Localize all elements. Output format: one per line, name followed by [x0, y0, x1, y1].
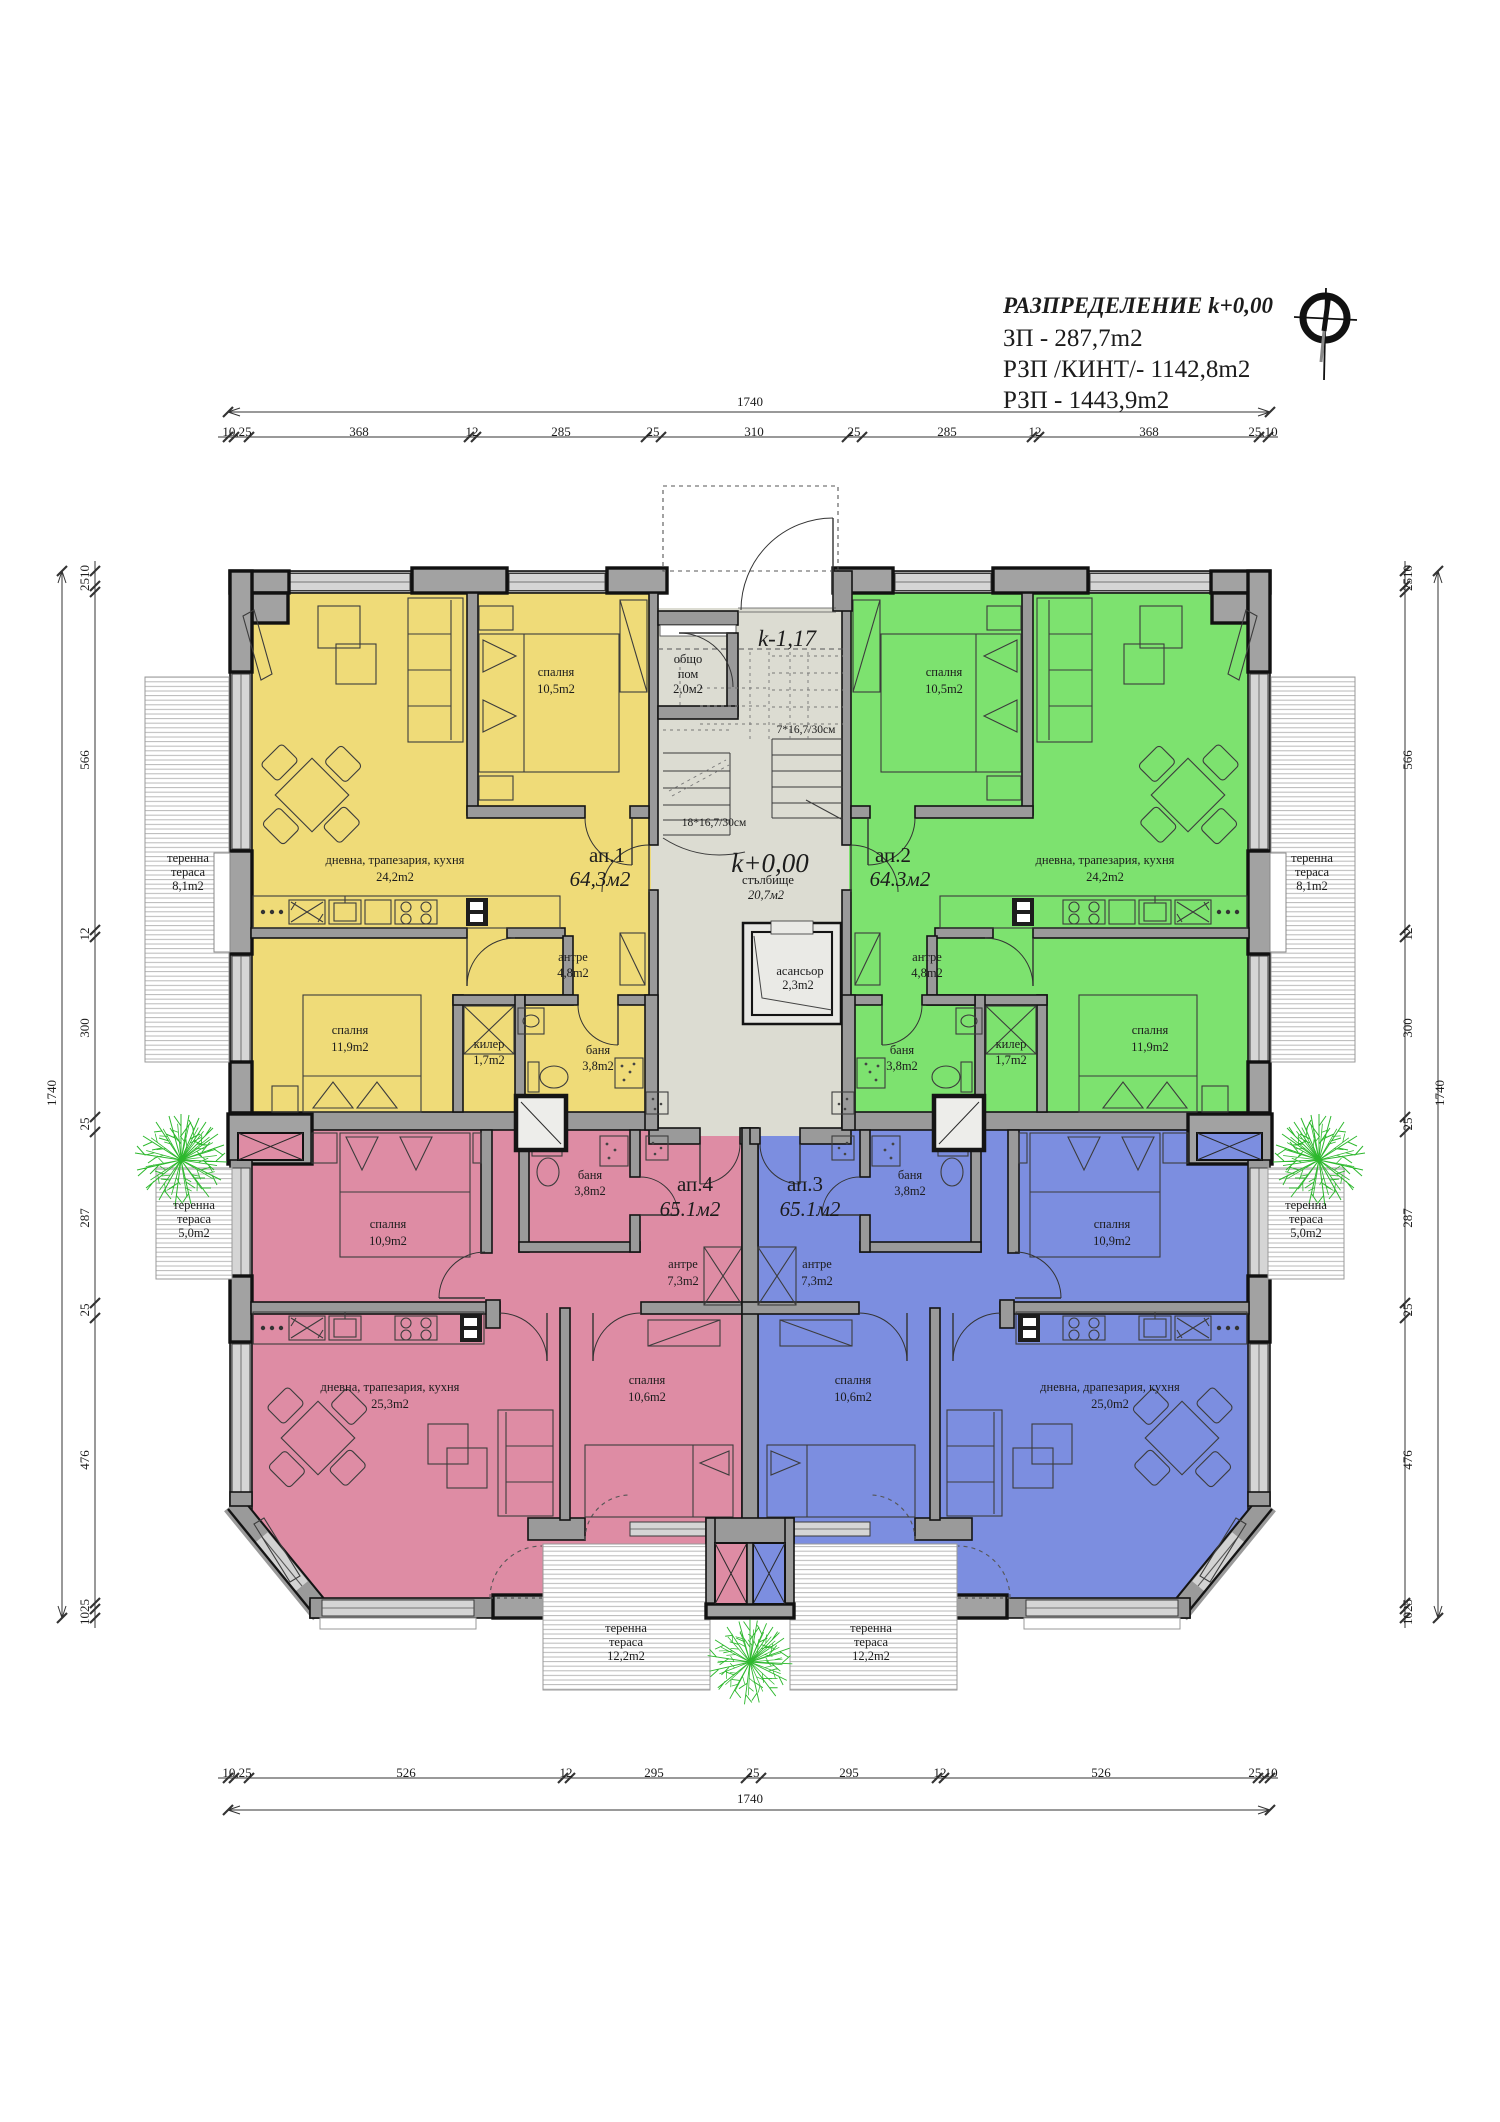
svg-text:24,2m2: 24,2m2	[376, 870, 414, 884]
svg-text:12,2m2: 12,2m2	[607, 1649, 645, 1663]
svg-text:дневна, трапезария, кухня: дневна, трапезария, кухня	[326, 853, 465, 867]
svg-text:3,8m2: 3,8m2	[574, 1184, 606, 1198]
svg-text:РАЗПРЕДЕЛЕНИЕ k+0,00: РАЗПРЕДЕЛЕНИЕ k+0,00	[1002, 293, 1273, 318]
svg-text:7,3m2: 7,3m2	[667, 1274, 699, 1288]
svg-text:25: 25	[848, 424, 861, 439]
svg-text:теренна: теренна	[850, 1621, 892, 1635]
svg-text:25,10: 25,10	[1248, 424, 1277, 439]
svg-text:асансьор: асансьор	[776, 964, 823, 978]
svg-text:стълбище: стълбище	[742, 873, 794, 887]
svg-text:300: 300	[77, 1018, 92, 1038]
svg-text:295: 295	[644, 1765, 664, 1780]
svg-text:1740: 1740	[44, 1080, 59, 1106]
svg-text:1025: 1025	[77, 1599, 92, 1625]
svg-text:теренна: теренна	[605, 1621, 647, 1635]
svg-text:566: 566	[1400, 750, 1415, 770]
svg-text:526: 526	[1091, 1765, 1111, 1780]
svg-text:300: 300	[1400, 1018, 1415, 1038]
svg-text:8,1m2: 8,1m2	[1296, 879, 1328, 893]
svg-text:РЗП - 1443,9m2: РЗП - 1443,9m2	[1003, 387, 1169, 414]
svg-text:1025: 1025	[1400, 1599, 1415, 1625]
svg-text:антре: антре	[912, 950, 942, 964]
svg-text:3,8m2: 3,8m2	[582, 1059, 614, 1073]
svg-text:25,0m2: 25,0m2	[1091, 1397, 1129, 1411]
svg-text:спалня: спалня	[538, 665, 575, 679]
svg-text:2,3m2: 2,3m2	[782, 978, 814, 992]
svg-text:368: 368	[349, 424, 369, 439]
svg-text:64.3м2: 64.3м2	[870, 867, 931, 891]
svg-text:10,25: 10,25	[222, 1765, 251, 1780]
svg-text:10,5m2: 10,5m2	[925, 682, 963, 696]
svg-text:1,7m2: 1,7m2	[473, 1053, 505, 1067]
svg-text:тераса: тераса	[609, 1635, 644, 1649]
svg-text:спалня: спалня	[332, 1023, 369, 1037]
svg-text:4,8m2: 4,8m2	[557, 966, 589, 980]
svg-text:баня: баня	[578, 1168, 603, 1182]
svg-text:антре: антре	[802, 1257, 832, 1271]
svg-text:антре: антре	[558, 950, 588, 964]
svg-text:баня: баня	[586, 1043, 611, 1057]
svg-text:310: 310	[744, 424, 764, 439]
svg-text:спалня: спалня	[926, 665, 963, 679]
svg-text:10,25: 10,25	[222, 424, 251, 439]
svg-text:дневна, трапезария, кухня: дневна, трапезария, кухня	[1036, 853, 1175, 867]
svg-text:3,8m2: 3,8m2	[886, 1059, 918, 1073]
svg-text:12: 12	[466, 424, 479, 439]
svg-text:ап.2: ап.2	[875, 843, 911, 867]
svg-text:спалня: спалня	[835, 1373, 872, 1387]
svg-text:k-1,17: k-1,17	[758, 626, 818, 651]
svg-text:тераса: тераса	[177, 1212, 212, 1226]
svg-text:25: 25	[747, 1765, 760, 1780]
svg-text:25: 25	[1400, 1118, 1415, 1131]
svg-text:5,0m2: 5,0m2	[178, 1226, 210, 1240]
svg-text:25,10: 25,10	[1248, 1765, 1277, 1780]
svg-text:12: 12	[934, 1765, 947, 1780]
svg-text:10,9m2: 10,9m2	[1093, 1234, 1131, 1248]
svg-text:1740: 1740	[737, 394, 763, 409]
svg-text:спалня: спалня	[1132, 1023, 1169, 1037]
svg-text:ап.3: ап.3	[787, 1172, 823, 1196]
svg-text:теренна: теренна	[167, 851, 209, 865]
svg-text:18*16,7/30см: 18*16,7/30см	[682, 817, 747, 829]
svg-text:пом: пом	[678, 667, 699, 681]
svg-text:4,8m2: 4,8m2	[911, 966, 943, 980]
svg-text:спалня: спалня	[1094, 1217, 1131, 1231]
svg-text:теренна: теренна	[173, 1198, 215, 1212]
svg-text:8,1m2: 8,1m2	[172, 879, 204, 893]
svg-text:25,3m2: 25,3m2	[371, 1397, 409, 1411]
svg-text:килер: килер	[474, 1037, 505, 1051]
svg-text:2510: 2510	[77, 565, 92, 591]
svg-text:2510: 2510	[1400, 565, 1415, 591]
svg-text:тераса: тераса	[171, 865, 206, 879]
svg-text:3,8m2: 3,8m2	[894, 1184, 926, 1198]
svg-text:25: 25	[77, 1118, 92, 1131]
svg-text:25: 25	[647, 424, 660, 439]
svg-text:тераса: тераса	[854, 1635, 889, 1649]
svg-text:12: 12	[1400, 928, 1415, 941]
svg-text:1,7m2: 1,7m2	[995, 1053, 1027, 1067]
svg-text:65.1м2: 65.1м2	[660, 1197, 721, 1221]
svg-text:566: 566	[77, 750, 92, 770]
svg-text:287: 287	[77, 1208, 92, 1228]
svg-text:12: 12	[1029, 424, 1042, 439]
svg-text:1740: 1740	[737, 1791, 763, 1806]
svg-text:спалня: спалня	[370, 1217, 407, 1231]
svg-text:285: 285	[937, 424, 957, 439]
svg-text:12: 12	[560, 1765, 573, 1780]
svg-text:11,9m2: 11,9m2	[331, 1040, 368, 1054]
svg-text:476: 476	[1400, 1450, 1415, 1470]
svg-text:РЗП /КИНТ/- 1142,8m2: РЗП /КИНТ/- 1142,8m2	[1003, 356, 1250, 383]
svg-text:теренна: теренна	[1285, 1198, 1327, 1212]
svg-text:антре: антре	[668, 1257, 698, 1271]
svg-text:526: 526	[396, 1765, 416, 1780]
svg-text:25: 25	[77, 1304, 92, 1317]
svg-text:килер: килер	[996, 1037, 1027, 1051]
svg-text:баня: баня	[898, 1168, 923, 1182]
svg-text:7,3m2: 7,3m2	[801, 1274, 833, 1288]
svg-text:285: 285	[551, 424, 571, 439]
svg-text:спалня: спалня	[629, 1373, 666, 1387]
svg-text:дневна, трапезария, кухня: дневна, трапезария, кухня	[321, 1380, 460, 1394]
svg-text:287: 287	[1400, 1208, 1415, 1228]
svg-text:65.1м2: 65.1м2	[780, 1197, 841, 1221]
svg-text:тераса: тераса	[1295, 865, 1330, 879]
svg-text:тераса: тераса	[1289, 1212, 1324, 1226]
svg-text:368: 368	[1139, 424, 1159, 439]
svg-text:7*16,7/30см: 7*16,7/30см	[777, 724, 836, 736]
svg-text:24,2m2: 24,2m2	[1086, 870, 1124, 884]
svg-text:ап.4: ап.4	[677, 1172, 714, 1196]
svg-text:10,5m2: 10,5m2	[537, 682, 575, 696]
svg-text:5,0m2: 5,0m2	[1290, 1226, 1322, 1240]
svg-text:476: 476	[77, 1450, 92, 1470]
svg-text:11,9m2: 11,9m2	[1131, 1040, 1168, 1054]
svg-text:64,3м2: 64,3м2	[570, 867, 631, 891]
svg-text:20,7м2: 20,7м2	[748, 888, 784, 902]
svg-text:баня: баня	[890, 1043, 915, 1057]
svg-text:теренна: теренна	[1291, 851, 1333, 865]
svg-text:295: 295	[839, 1765, 859, 1780]
svg-text:1740: 1740	[1432, 1080, 1447, 1106]
svg-text:10,9m2: 10,9m2	[369, 1234, 407, 1248]
svg-text:12: 12	[77, 928, 92, 941]
svg-text:10,6m2: 10,6m2	[834, 1390, 872, 1404]
svg-text:ап.1: ап.1	[589, 843, 625, 867]
svg-text:10,6m2: 10,6m2	[628, 1390, 666, 1404]
svg-text:12,2m2: 12,2m2	[852, 1649, 890, 1663]
svg-text:дневна, драпезария, кухня: дневна, драпезария, кухня	[1040, 1380, 1180, 1394]
svg-text:ЗП - 287,7m2: ЗП - 287,7m2	[1003, 325, 1143, 352]
svg-text:25: 25	[1400, 1304, 1415, 1317]
svg-text:2,0м2: 2,0м2	[673, 682, 703, 696]
svg-text:общо: общо	[674, 652, 703, 666]
